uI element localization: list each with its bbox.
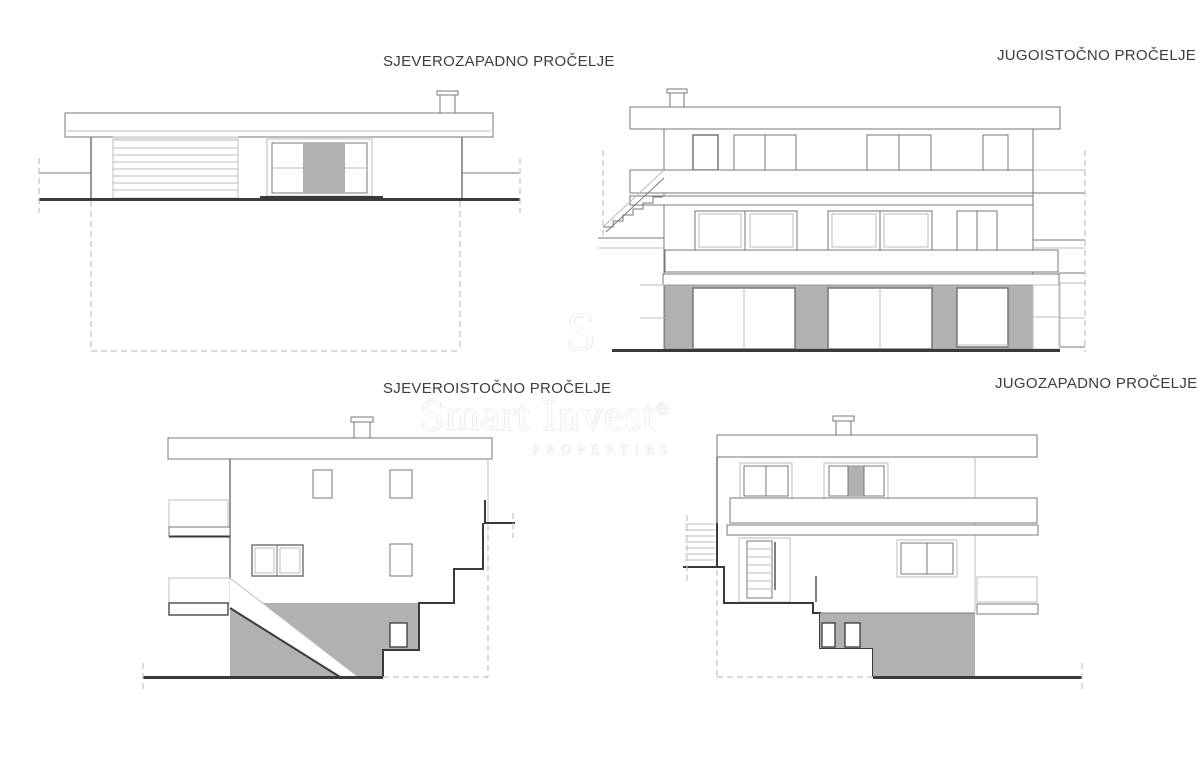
chimney-cap: [667, 89, 687, 93]
glass-doors: [693, 288, 1008, 349]
chimney-cap: [437, 91, 458, 95]
roof-slab: [168, 438, 492, 459]
upper-balcony-slab: [630, 170, 1033, 205]
lower-left-balcony: [169, 578, 230, 615]
label-northeast-facade: SJEVEROISTOČNO PROČELJE: [383, 380, 611, 397]
chimney-cap: [833, 416, 854, 421]
lower-balcony-slab: [663, 250, 1059, 285]
elevation-northeast-drawing: [143, 417, 515, 692]
basement-window: [822, 623, 835, 647]
window: [267, 139, 372, 196]
upper-left-balcony: [169, 500, 230, 537]
chimney-cap: [351, 417, 373, 422]
terrain-steps: [383, 500, 515, 677]
label-southwest-facade: JUGOZAPADNO PROČELJE: [995, 375, 1197, 392]
upper-windows: [740, 463, 888, 498]
exterior-stairs: [683, 524, 717, 567]
elevation-northwest-drawing: [39, 91, 520, 351]
drawing-sheet: SJEVEROZAPADNO PROČELJE JUGOISTOČNO PROČ…: [0, 0, 1200, 771]
chimney: [354, 422, 370, 438]
middle-windows: [252, 544, 412, 576]
elevation-southeast-drawing: [598, 89, 1085, 352]
right-balcony: [977, 577, 1038, 614]
elevation-southwest-drawing: [683, 416, 1082, 690]
label-northwest-facade: SJEVEROZAPADNO PROČELJE: [383, 53, 615, 70]
chimney: [836, 421, 851, 435]
chimney: [440, 95, 455, 113]
garage-door: [113, 137, 238, 198]
chimney: [670, 93, 684, 107]
basement-window: [390, 623, 407, 647]
label-southeast-facade: JUGOISTOČNO PROČELJE: [997, 47, 1196, 64]
middle-window: [897, 540, 957, 577]
basement-window: [845, 623, 860, 647]
roof-slab: [65, 113, 493, 137]
basement-wall-section: [820, 613, 975, 677]
roof-slab: [630, 107, 1060, 129]
balcony-slab: [727, 498, 1038, 535]
entrance-door: [739, 538, 790, 602]
upper-windows: [313, 470, 412, 498]
roof-slab: [717, 435, 1037, 457]
